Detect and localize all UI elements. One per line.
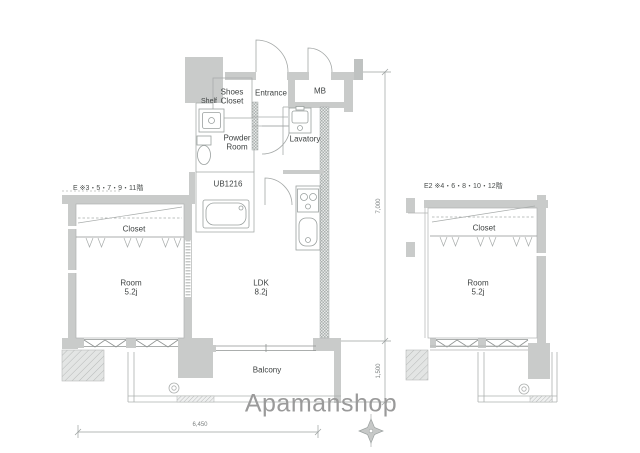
unit-left-floor-note: E ※3・5・7・9・11階 xyxy=(73,183,143,193)
dimension-total-height: 7,000 xyxy=(376,198,382,213)
powder-room-label: Powder Room xyxy=(223,134,250,153)
room-left-label: Room 5.2j xyxy=(120,279,141,298)
lavatory-label: Lavatory xyxy=(290,134,321,143)
entrance-label: Entrance xyxy=(255,88,287,97)
mb-label: MB xyxy=(314,86,326,95)
balcony-label: Balcony xyxy=(253,365,281,374)
floorplan-drawing xyxy=(0,0,640,453)
mb-door xyxy=(308,48,332,72)
shelf-label: Shelf xyxy=(201,98,217,106)
closet-right-label: Closet xyxy=(473,223,496,232)
toilet xyxy=(197,136,211,165)
north-compass-icon xyxy=(359,414,383,447)
unit-right-floor-note: E2 ※4・6・8・10・12階 xyxy=(424,181,503,191)
outdoor-hatch-pads xyxy=(62,350,428,381)
hall-door xyxy=(262,126,290,154)
shoes-closet-label: Shoes Closet xyxy=(221,88,244,107)
kitchen xyxy=(296,186,320,250)
dimension-lines xyxy=(75,69,391,438)
floorplan-canvas: Shoes Closet Entrance MB Shelf Powder Ro… xyxy=(0,0,640,453)
apamanshop-watermark: Apamanshop xyxy=(245,390,397,419)
closet-left-label: Closet xyxy=(123,224,146,233)
entrance-door xyxy=(256,40,288,72)
balcony-drain xyxy=(169,383,179,393)
ldk-door xyxy=(265,178,292,205)
lavatory-basin xyxy=(289,107,311,134)
unit-bath-label: UB1216 xyxy=(214,179,243,188)
ldk-label: LDK 8.2j xyxy=(253,279,269,298)
dimension-balcony-depth: 1,500 xyxy=(376,363,382,378)
sliding-door xyxy=(185,240,192,297)
bathtub xyxy=(203,200,249,228)
dimension-total-width: 6,450 xyxy=(192,422,207,428)
room-right-label: Room 5.2j xyxy=(467,279,488,298)
fixtures xyxy=(197,107,320,251)
washer-pan xyxy=(199,109,224,132)
balcony-drain-right xyxy=(519,384,529,394)
